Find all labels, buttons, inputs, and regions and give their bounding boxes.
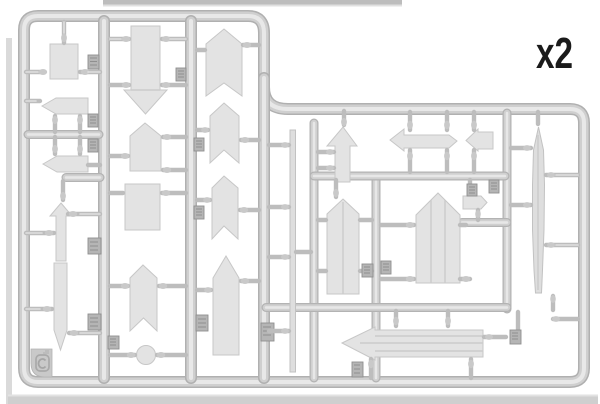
svg-text:x2: x2 [536, 29, 573, 78]
